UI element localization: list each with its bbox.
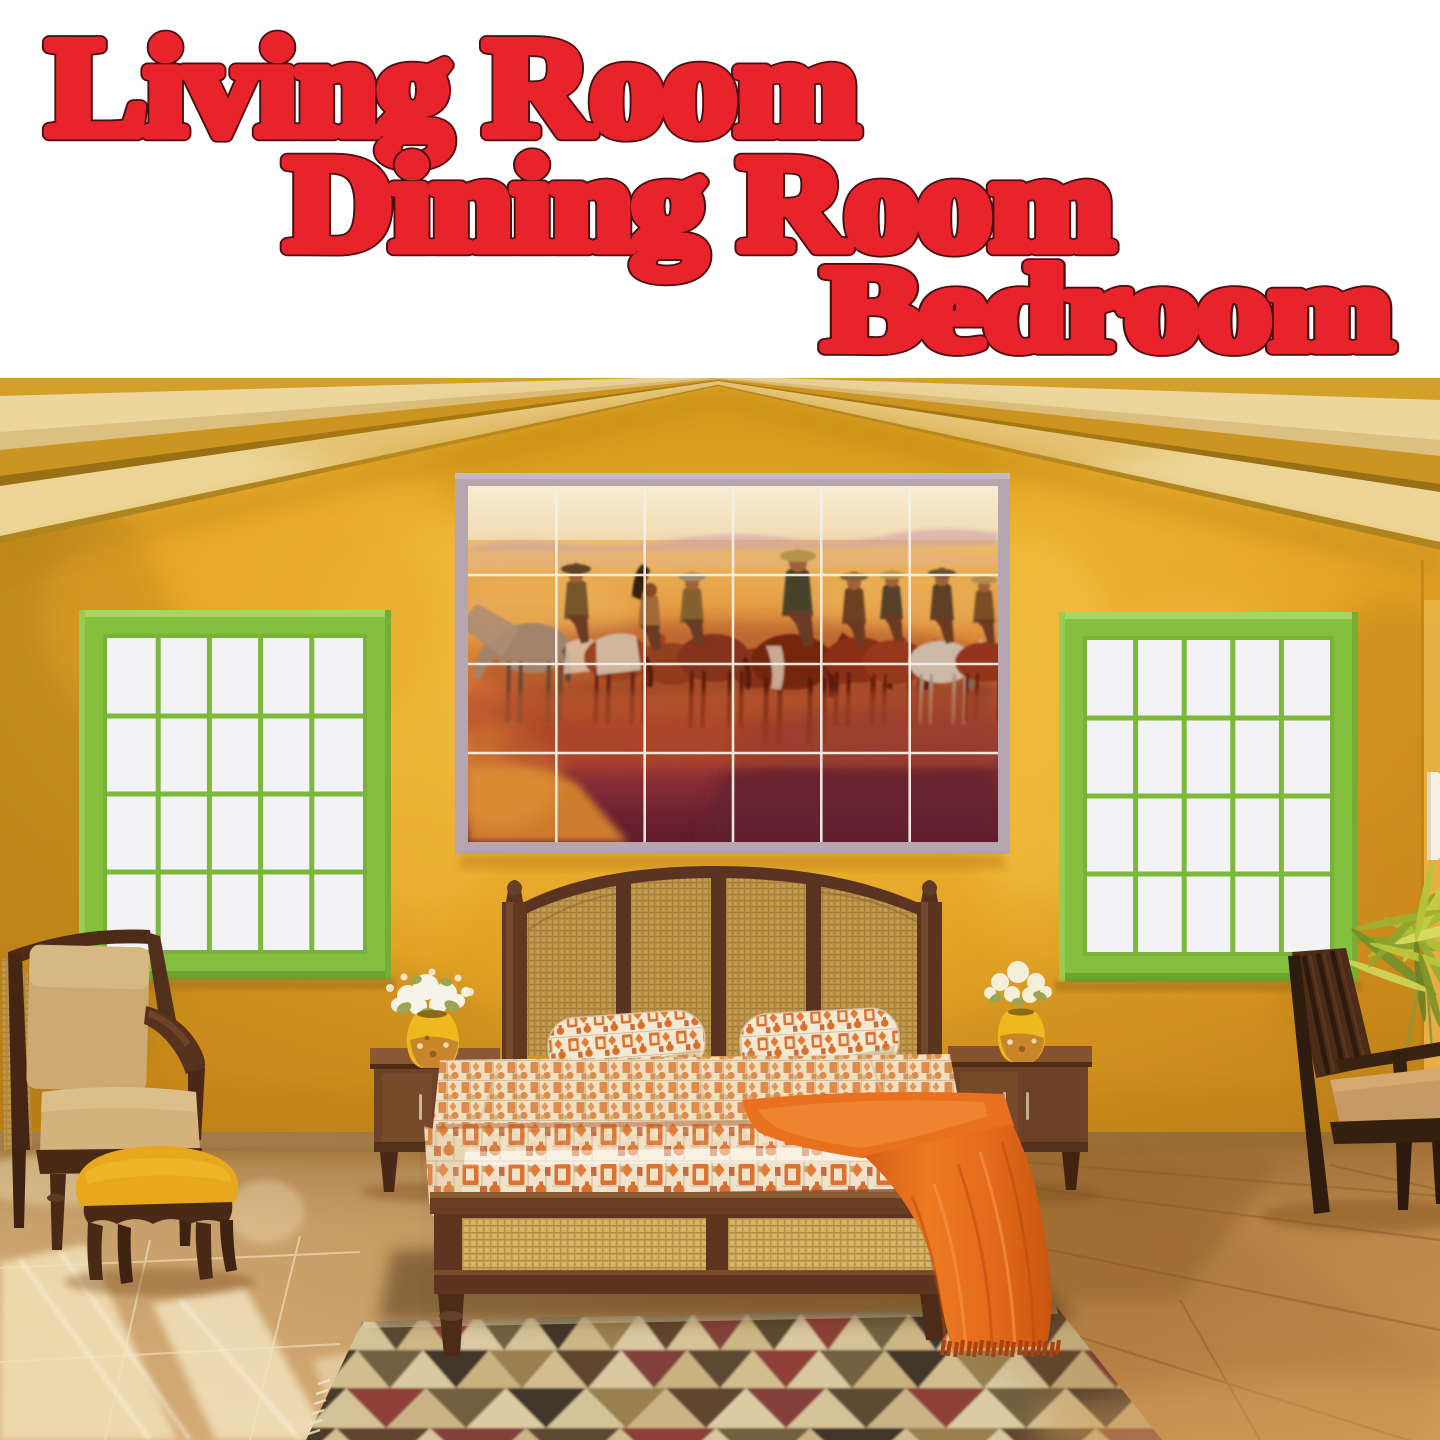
svg-text:Bedroom: Bedroom <box>823 242 1391 376</box>
